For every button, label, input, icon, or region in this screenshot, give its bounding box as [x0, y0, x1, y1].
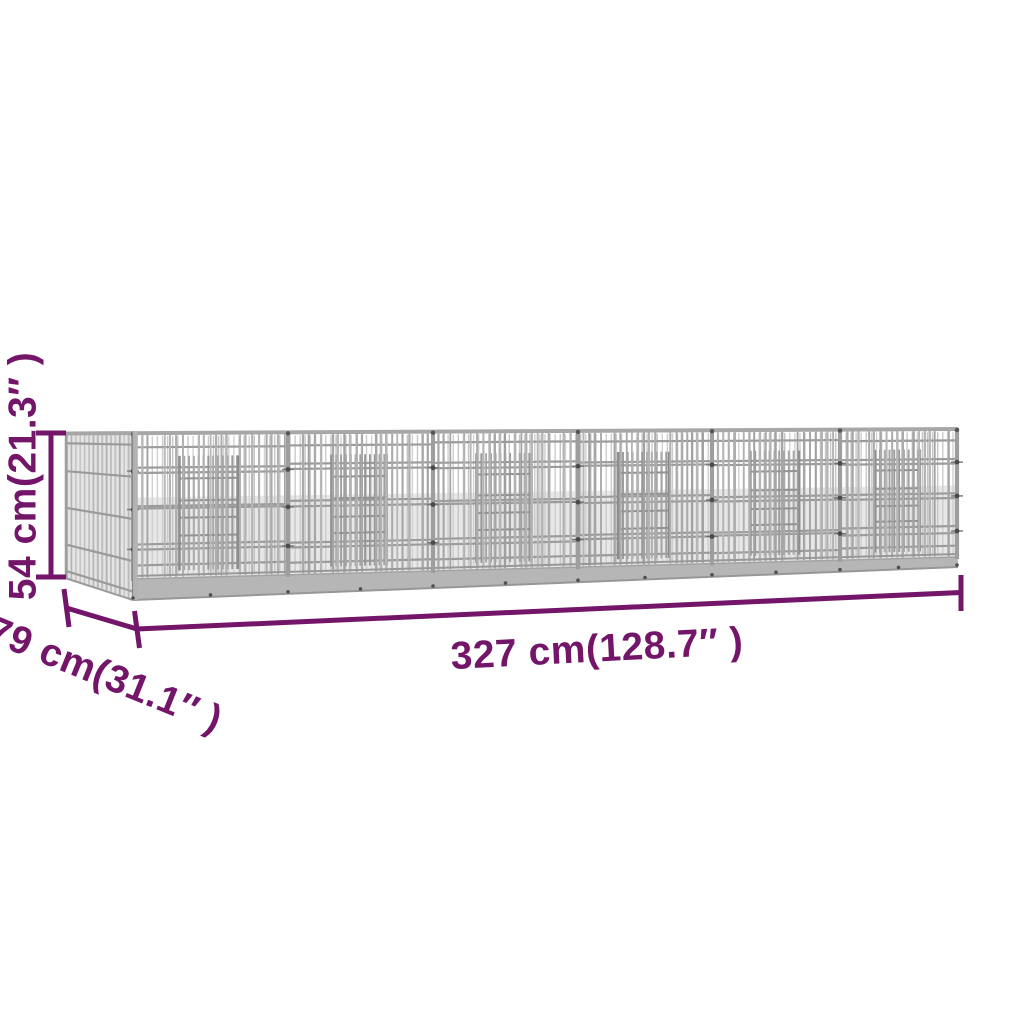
depth-dimension-line	[67, 608, 138, 629]
product-dimension-figure: 54 cm(21.3″ ) 79 cm(31.1″ ) 327 cm(128.7…	[0, 0, 1024, 1024]
depth-dimension-cap-left	[64, 589, 69, 627]
length-dimension-label: 327 cm(128.7″ )	[450, 620, 745, 678]
length-dimension-line	[137, 593, 961, 630]
cage-illustration	[65, 428, 963, 600]
height-dimension-label: 54 cm(21.3″ )	[2, 352, 45, 600]
figure-canvas: 54 cm(21.3″ ) 79 cm(31.1″ ) 327 cm(128.7…	[0, 0, 1024, 1024]
